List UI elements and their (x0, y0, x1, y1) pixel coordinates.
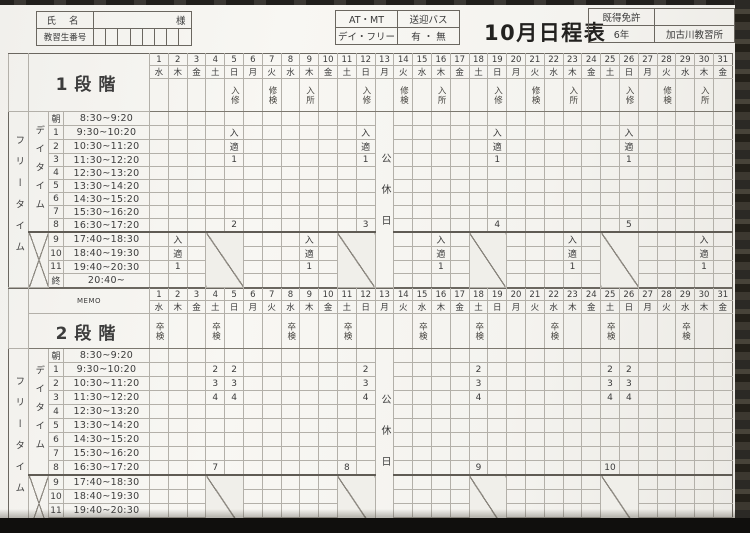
weekday-cell: 木 (431, 301, 450, 314)
entry-cell (187, 232, 206, 247)
event-cell: 卒検 (544, 314, 563, 349)
entry-cell (713, 206, 732, 219)
weekday-cell: 月 (638, 301, 657, 314)
entry-cell (187, 349, 206, 363)
entry-cell: 適 (168, 247, 187, 261)
entry-cell (262, 377, 281, 391)
entry-cell (431, 475, 450, 490)
entry-cell (413, 261, 432, 274)
period-time: 10:30~11:20 (64, 377, 150, 391)
entry-cell (319, 433, 338, 447)
entry-cell (243, 232, 262, 247)
entry-cell (695, 363, 714, 377)
entry-cell (300, 490, 319, 504)
entry-cell (150, 247, 169, 261)
name-table: 氏 名 様 教習生番号 (36, 11, 192, 46)
special-cell (657, 314, 676, 349)
entry-cell (431, 126, 450, 140)
entry-cell (262, 349, 281, 363)
entry-cell: 入 (431, 232, 450, 247)
entry-cell (225, 461, 244, 476)
entry-cell (281, 112, 300, 126)
entry-cell (507, 475, 526, 490)
period-time: 15:30~16:20 (64, 206, 150, 219)
date-cell: 26 (619, 54, 638, 66)
entry-cell (150, 363, 169, 377)
license-label: 既得免許 (589, 9, 655, 26)
weekday-cell: 木 (431, 66, 450, 79)
entry-cell (713, 349, 732, 363)
entry-cell (281, 140, 300, 154)
entry-cell (695, 447, 714, 461)
entry-cell (281, 180, 300, 193)
entry-cell (337, 193, 356, 206)
special-cell (582, 314, 601, 349)
period-time: 10:30~11:20 (64, 140, 150, 154)
entry-cell (300, 475, 319, 490)
entry-cell (281, 154, 300, 167)
special-cell (695, 314, 714, 349)
entry-cell (394, 377, 413, 391)
entry-cell (450, 232, 469, 247)
entry-cell (168, 140, 187, 154)
entry-cell (525, 363, 544, 377)
entry-cell (319, 419, 338, 433)
entry-cell (262, 112, 281, 126)
entry-cell: 2 (225, 363, 244, 377)
entry-cell (507, 391, 526, 405)
entry-cell (431, 167, 450, 180)
entry-cell (525, 112, 544, 126)
entry-cell (695, 391, 714, 405)
weekday-cell: 金 (450, 301, 469, 314)
stage1-schedule-table: 1段階1234567891011121314151617181920212223… (8, 53, 733, 288)
entry-cell (582, 461, 601, 476)
entry-cell (319, 232, 338, 247)
entry-cell (431, 193, 450, 206)
entry-cell (262, 140, 281, 154)
entry-cell (168, 112, 187, 126)
entry-cell (657, 433, 676, 447)
entry-cell (450, 180, 469, 193)
entry-cell (187, 219, 206, 233)
entry-cell (507, 154, 526, 167)
entry-cell (657, 126, 676, 140)
entry-cell (695, 206, 714, 219)
entry-cell (243, 490, 262, 504)
entry-cell (450, 193, 469, 206)
holiday-cell: 公休日 (375, 349, 394, 532)
weekday-cell: 日 (356, 66, 375, 79)
entry-cell (319, 180, 338, 193)
entry-cell (657, 349, 676, 363)
weekday-cell: 金 (450, 66, 469, 79)
date-cell: 16 (431, 289, 450, 301)
entry-cell (243, 261, 262, 274)
entry-cell (431, 219, 450, 233)
shuttle-bus-label: 送迎バス (398, 11, 460, 28)
weekday-cell: 水 (150, 301, 169, 314)
entry-cell (300, 504, 319, 518)
event-cell: 入所 (300, 79, 319, 112)
entry-cell: 8 (337, 461, 356, 476)
entry-cell (413, 433, 432, 447)
entry-cell (488, 433, 507, 447)
entry-cell (713, 405, 732, 419)
date-cell: 10 (319, 289, 338, 301)
entry-cell (243, 433, 262, 447)
date-cell: 1 (150, 289, 169, 301)
entry-cell (657, 180, 676, 193)
entry-cell (150, 419, 169, 433)
free-time-label: フリータイム (9, 112, 29, 288)
entry-cell (582, 391, 601, 405)
entry-cell (319, 206, 338, 219)
entry-cell (582, 433, 601, 447)
entry-cell (507, 447, 526, 461)
day-time-label: デイタイム (29, 349, 49, 476)
entry-cell (413, 475, 432, 490)
entry-cell (206, 112, 225, 126)
crossed-box (29, 232, 49, 288)
entry-cell (695, 433, 714, 447)
entry-cell (507, 167, 526, 180)
entry-cell (469, 447, 488, 461)
entry-cell (413, 363, 432, 377)
entry-cell (394, 405, 413, 419)
entry-cell (394, 475, 413, 490)
date-cell: 7 (262, 54, 281, 66)
entry-cell (450, 349, 469, 363)
entry-cell (676, 112, 695, 126)
weekday-cell: 金 (582, 301, 601, 314)
entry-cell (713, 140, 732, 154)
period-number: 10 (49, 490, 64, 504)
entry-cell (563, 193, 582, 206)
date-cell: 8 (281, 54, 300, 66)
special-cell (319, 314, 338, 349)
entry-cell (525, 447, 544, 461)
entry-cell (713, 504, 732, 518)
entry-cell (225, 433, 244, 447)
entry-cell (488, 112, 507, 126)
date-cell: 29 (676, 54, 695, 66)
entry-cell (544, 349, 563, 363)
entry-cell (281, 193, 300, 206)
entry-cell (262, 391, 281, 405)
entry-cell (544, 490, 563, 504)
entry-cell (450, 247, 469, 261)
photo-edge-bottom (0, 518, 750, 533)
entry-cell (319, 349, 338, 363)
entry-cell (394, 140, 413, 154)
entry-cell: 4 (601, 391, 620, 405)
corner-void (9, 54, 29, 112)
entry-cell: 入 (563, 232, 582, 247)
date-cell: 25 (601, 289, 620, 301)
special-cell (281, 79, 300, 112)
date-cell: 9 (300, 54, 319, 66)
entry-cell (638, 140, 657, 154)
entry-cell (695, 180, 714, 193)
date-cell: 3 (187, 289, 206, 301)
entry-cell (544, 377, 563, 391)
event-cell: 修検 (525, 79, 544, 112)
entry-cell (525, 419, 544, 433)
entry-cell: 入 (168, 232, 187, 247)
entry-cell (450, 405, 469, 419)
entry-cell (638, 126, 657, 140)
entry-cell (525, 349, 544, 363)
entry-cell (150, 112, 169, 126)
entry-cell (638, 193, 657, 206)
entry-cell (638, 232, 657, 247)
entry-cell (431, 154, 450, 167)
entry-cell (507, 405, 526, 419)
entry-cell (150, 232, 169, 247)
date-cell: 31 (713, 54, 732, 66)
entry-cell (281, 219, 300, 233)
entry-cell (582, 154, 601, 167)
entry-cell (507, 140, 526, 154)
entry-cell (150, 274, 169, 288)
entry-cell (337, 363, 356, 377)
entry-cell (300, 206, 319, 219)
entry-cell (563, 433, 582, 447)
entry-cell (431, 405, 450, 419)
special-cell (206, 79, 225, 112)
entry-cell (413, 140, 432, 154)
entry-cell (657, 140, 676, 154)
entry-cell (300, 405, 319, 419)
entry-cell (676, 419, 695, 433)
entry-cell (243, 349, 262, 363)
special-cell (713, 79, 732, 112)
entry-cell (619, 447, 638, 461)
event-cell: 修検 (657, 79, 676, 112)
entry-cell (281, 419, 300, 433)
entry-cell (563, 377, 582, 391)
weekday-cell: 月 (375, 301, 394, 314)
entry-cell (695, 112, 714, 126)
date-cell: 8 (281, 289, 300, 301)
entry-cell (319, 391, 338, 405)
weekday-cell: 土 (469, 66, 488, 79)
day-time-label: デイタイム (29, 112, 49, 233)
entry-cell (187, 126, 206, 140)
entry-cell (657, 274, 676, 288)
student-number-box (154, 29, 166, 46)
entry-cell (168, 219, 187, 233)
entry-cell (150, 475, 169, 490)
entry-cell (394, 193, 413, 206)
entry-cell (262, 475, 281, 490)
entry-cell (187, 180, 206, 193)
date-cell: 7 (262, 289, 281, 301)
entry-cell (676, 232, 695, 247)
entry-cell (507, 377, 526, 391)
entry-cell (450, 112, 469, 126)
entry-cell (676, 180, 695, 193)
special-cell (450, 314, 469, 349)
entry-cell: 適 (619, 140, 638, 154)
entry-cell (507, 180, 526, 193)
entry-cell (507, 112, 526, 126)
date-cell: 22 (544, 289, 563, 301)
entry-cell (431, 112, 450, 126)
entry-cell: 4 (225, 391, 244, 405)
license-value (655, 9, 735, 26)
entry-cell (150, 490, 169, 504)
entry-cell (413, 180, 432, 193)
entry-cell (281, 475, 300, 490)
entry-cell (601, 419, 620, 433)
date-cell: 16 (431, 54, 450, 66)
entry-cell (713, 232, 732, 247)
entry-cell (206, 447, 225, 461)
period-number: 4 (49, 167, 64, 180)
entry-cell (337, 349, 356, 363)
entry-cell (150, 167, 169, 180)
period-number: 9 (49, 475, 64, 490)
student-number-box (94, 29, 106, 46)
entry-cell (601, 193, 620, 206)
stage-title: 1段階 (29, 54, 150, 112)
entry-cell (450, 363, 469, 377)
entry-cell (713, 193, 732, 206)
entry-cell (413, 219, 432, 233)
entry-cell (150, 154, 169, 167)
entry-cell (243, 112, 262, 126)
entry-cell (319, 274, 338, 288)
entry-cell (695, 219, 714, 233)
entry-cell (413, 206, 432, 219)
entry-cell (431, 490, 450, 504)
entry-cell (582, 247, 601, 261)
entry-cell (695, 490, 714, 504)
entry-cell (582, 232, 601, 247)
entry-cell (488, 405, 507, 419)
entry-cell (431, 419, 450, 433)
period-number: 8 (49, 219, 64, 233)
date-cell: 11 (337, 289, 356, 301)
special-cell (488, 314, 507, 349)
entry-cell (413, 405, 432, 419)
entry-cell (356, 419, 375, 433)
entry-cell: 10 (601, 461, 620, 476)
student-number-box (167, 29, 179, 46)
entry-cell (563, 363, 582, 377)
entry-cell (601, 126, 620, 140)
entry-cell (507, 433, 526, 447)
entry-cell (601, 349, 620, 363)
entry-cell (657, 193, 676, 206)
period-time: 8:30~9:20 (64, 112, 150, 126)
entry-cell (713, 461, 732, 476)
date-cell: 20 (507, 54, 526, 66)
weekday-cell: 月 (243, 66, 262, 79)
entry-cell (431, 274, 450, 288)
entry-cell (563, 140, 582, 154)
period-time: 17:40~18:30 (64, 232, 150, 247)
entry-cell (150, 391, 169, 405)
period-number: 3 (49, 154, 64, 167)
date-cell: 19 (488, 54, 507, 66)
entry-cell (262, 461, 281, 476)
entry-cell (150, 377, 169, 391)
entry-cell (657, 490, 676, 504)
entry-cell (243, 206, 262, 219)
entry-cell (150, 206, 169, 219)
entry-cell (337, 433, 356, 447)
entry-cell (525, 405, 544, 419)
entry-cell (319, 461, 338, 476)
entry-cell (713, 433, 732, 447)
entry-cell (450, 461, 469, 476)
entry-cell (507, 206, 526, 219)
entry-cell (225, 180, 244, 193)
period-time: 16:30~17:20 (64, 461, 150, 476)
entry-cell (507, 261, 526, 274)
entry-cell (319, 377, 338, 391)
entry-cell (657, 112, 676, 126)
entry-cell (394, 349, 413, 363)
event-cell: 卒検 (150, 314, 169, 349)
period-number: 2 (49, 377, 64, 391)
entry-cell (713, 475, 732, 490)
entry-cell (488, 391, 507, 405)
entry-cell (187, 447, 206, 461)
entry-cell (544, 140, 563, 154)
entry-cell (206, 193, 225, 206)
weekday-cell: 金 (713, 66, 732, 79)
weekday-cell: 土 (601, 66, 620, 79)
entry-cell (262, 232, 281, 247)
entry-cell (582, 447, 601, 461)
entry-cell (713, 261, 732, 274)
date-cell: 24 (582, 289, 601, 301)
weekday-cell: 木 (563, 301, 582, 314)
date-cell: 18 (469, 54, 488, 66)
entry-cell (431, 206, 450, 219)
entry-cell (638, 419, 657, 433)
entry-cell (488, 167, 507, 180)
entry-cell (676, 274, 695, 288)
entry-cell (657, 419, 676, 433)
entry-cell (544, 433, 563, 447)
entry-cell (150, 349, 169, 363)
entry-cell (337, 391, 356, 405)
entry-cell (713, 126, 732, 140)
student-number-box (106, 29, 118, 46)
entry-cell (525, 274, 544, 288)
entry-cell (337, 447, 356, 461)
entry-cell (413, 461, 432, 476)
period-time: 8:30~9:20 (64, 349, 150, 363)
entry-cell (187, 391, 206, 405)
period-time: 13:30~14:20 (64, 419, 150, 433)
entry-cell (713, 391, 732, 405)
photo-background: 氏 名 様 教習生番号 AT・MT 送迎バス デイ・フリ (0, 0, 750, 533)
entry-cell (337, 180, 356, 193)
period-time: 11:30~12:20 (64, 154, 150, 167)
entry-cell (168, 419, 187, 433)
entry-cell (168, 461, 187, 476)
entry-cell (469, 219, 488, 233)
entry-cell (619, 167, 638, 180)
entry-cell (150, 140, 169, 154)
entry-cell (168, 504, 187, 518)
